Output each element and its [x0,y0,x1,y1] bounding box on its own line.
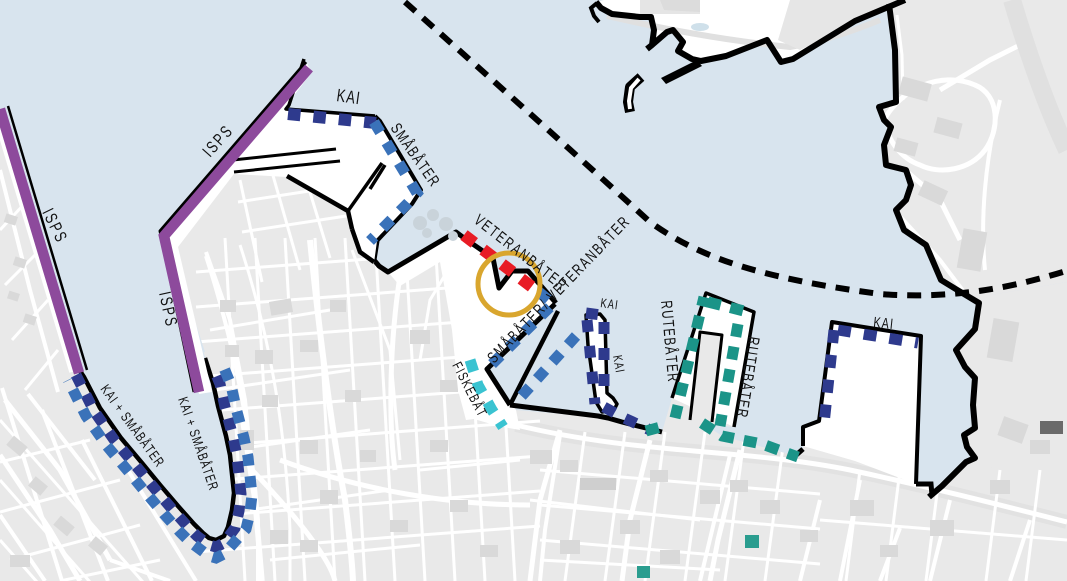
svg-text:KAI: KAI [600,297,620,313]
svg-text:KAI: KAI [335,86,362,109]
svg-text:KAI: KAI [873,313,895,332]
